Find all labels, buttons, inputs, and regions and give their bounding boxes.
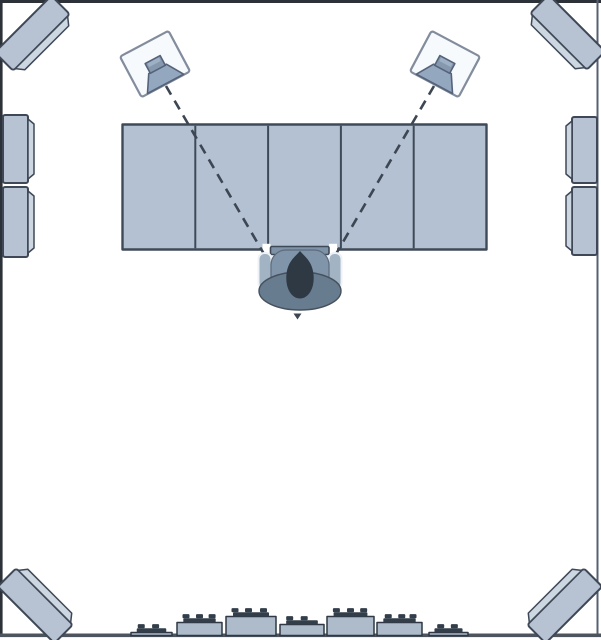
- absorber-panel-left-1: [3, 115, 34, 183]
- diffuser-block-body: [280, 625, 324, 636]
- listener: [259, 250, 342, 320]
- diffuser-block: [327, 608, 374, 635]
- diffuser-block: [429, 624, 468, 635]
- diffuser-block-plate: [286, 620, 318, 624]
- panel-face: [3, 187, 28, 257]
- diffuser-stud: [398, 614, 405, 618]
- listening-position-marker: [294, 314, 302, 320]
- diffuser-block-body: [327, 617, 374, 636]
- corner-bass-trap-bottom-right: [522, 563, 601, 640]
- skyline-diffuser: [131, 608, 468, 635]
- diffuser-stud: [260, 608, 267, 612]
- diffuser-block-plate: [434, 628, 462, 632]
- diffuser-stud: [410, 614, 417, 618]
- right-wall-line: [597, 0, 599, 637]
- monitor-speaker-right: [410, 31, 480, 97]
- diffuser-block-body: [131, 633, 172, 636]
- diffuser-block: [377, 614, 422, 635]
- studio-desk: [123, 125, 487, 256]
- panel-face: [572, 117, 597, 183]
- diffuser-stud: [437, 624, 444, 628]
- diffuser-stud: [232, 608, 239, 612]
- diffuser-block: [226, 608, 276, 635]
- diffuser-block-body: [226, 617, 276, 636]
- corner-bass-trap-bottom-left: [0, 563, 78, 640]
- diffuser-block-body: [429, 633, 468, 636]
- corner-bass-trap-top-right: [525, 0, 601, 75]
- control-room-diagram: [0, 0, 601, 640]
- panel-bevel: [28, 191, 34, 253]
- panel-bevel: [566, 191, 572, 251]
- diffuser-stud: [360, 608, 367, 612]
- diffuser-block: [177, 614, 222, 635]
- corner-bass-trap-top-left: [0, 0, 75, 76]
- absorber-panel-right-1: [566, 117, 597, 183]
- panel-bevel: [566, 121, 572, 179]
- diffuser-block: [280, 616, 324, 635]
- diffuser-block-plate: [383, 618, 415, 622]
- room-plan-svg: [0, 0, 601, 640]
- diffuser-stud: [196, 614, 203, 618]
- diffuser-stud: [451, 624, 458, 628]
- monitor-speaker-left: [120, 31, 190, 97]
- diffuser-stud: [138, 624, 145, 628]
- diffuser-stud: [286, 616, 293, 620]
- absorber-panel-left-2: [3, 187, 34, 257]
- diffuser-stud: [183, 614, 190, 618]
- diffuser-block-plate: [137, 628, 167, 632]
- diffuser-block-plate: [183, 618, 215, 622]
- panel-face: [572, 187, 597, 255]
- diffuser-stud: [209, 614, 216, 618]
- diffuser-block-body: [377, 623, 422, 636]
- diffuser-stud: [301, 616, 308, 620]
- diffuser-stud: [152, 624, 159, 628]
- diffuser-block-plate: [233, 612, 269, 616]
- desk-surface: [123, 125, 487, 250]
- diffuser-stud: [385, 614, 392, 618]
- panel-face: [3, 115, 28, 183]
- diffuser-stud: [333, 608, 340, 612]
- diffuser-block-plate: [334, 612, 368, 616]
- diffuser-stud: [245, 608, 252, 612]
- left-wall-line: [0, 0, 3, 637]
- absorber-panel-right-2: [566, 187, 597, 255]
- diffuser-block-body: [177, 623, 222, 636]
- panel-bevel: [28, 119, 34, 179]
- diffuser-block: [131, 624, 172, 635]
- diffuser-stud: [347, 608, 354, 612]
- front-wall-line: [0, 0, 601, 3]
